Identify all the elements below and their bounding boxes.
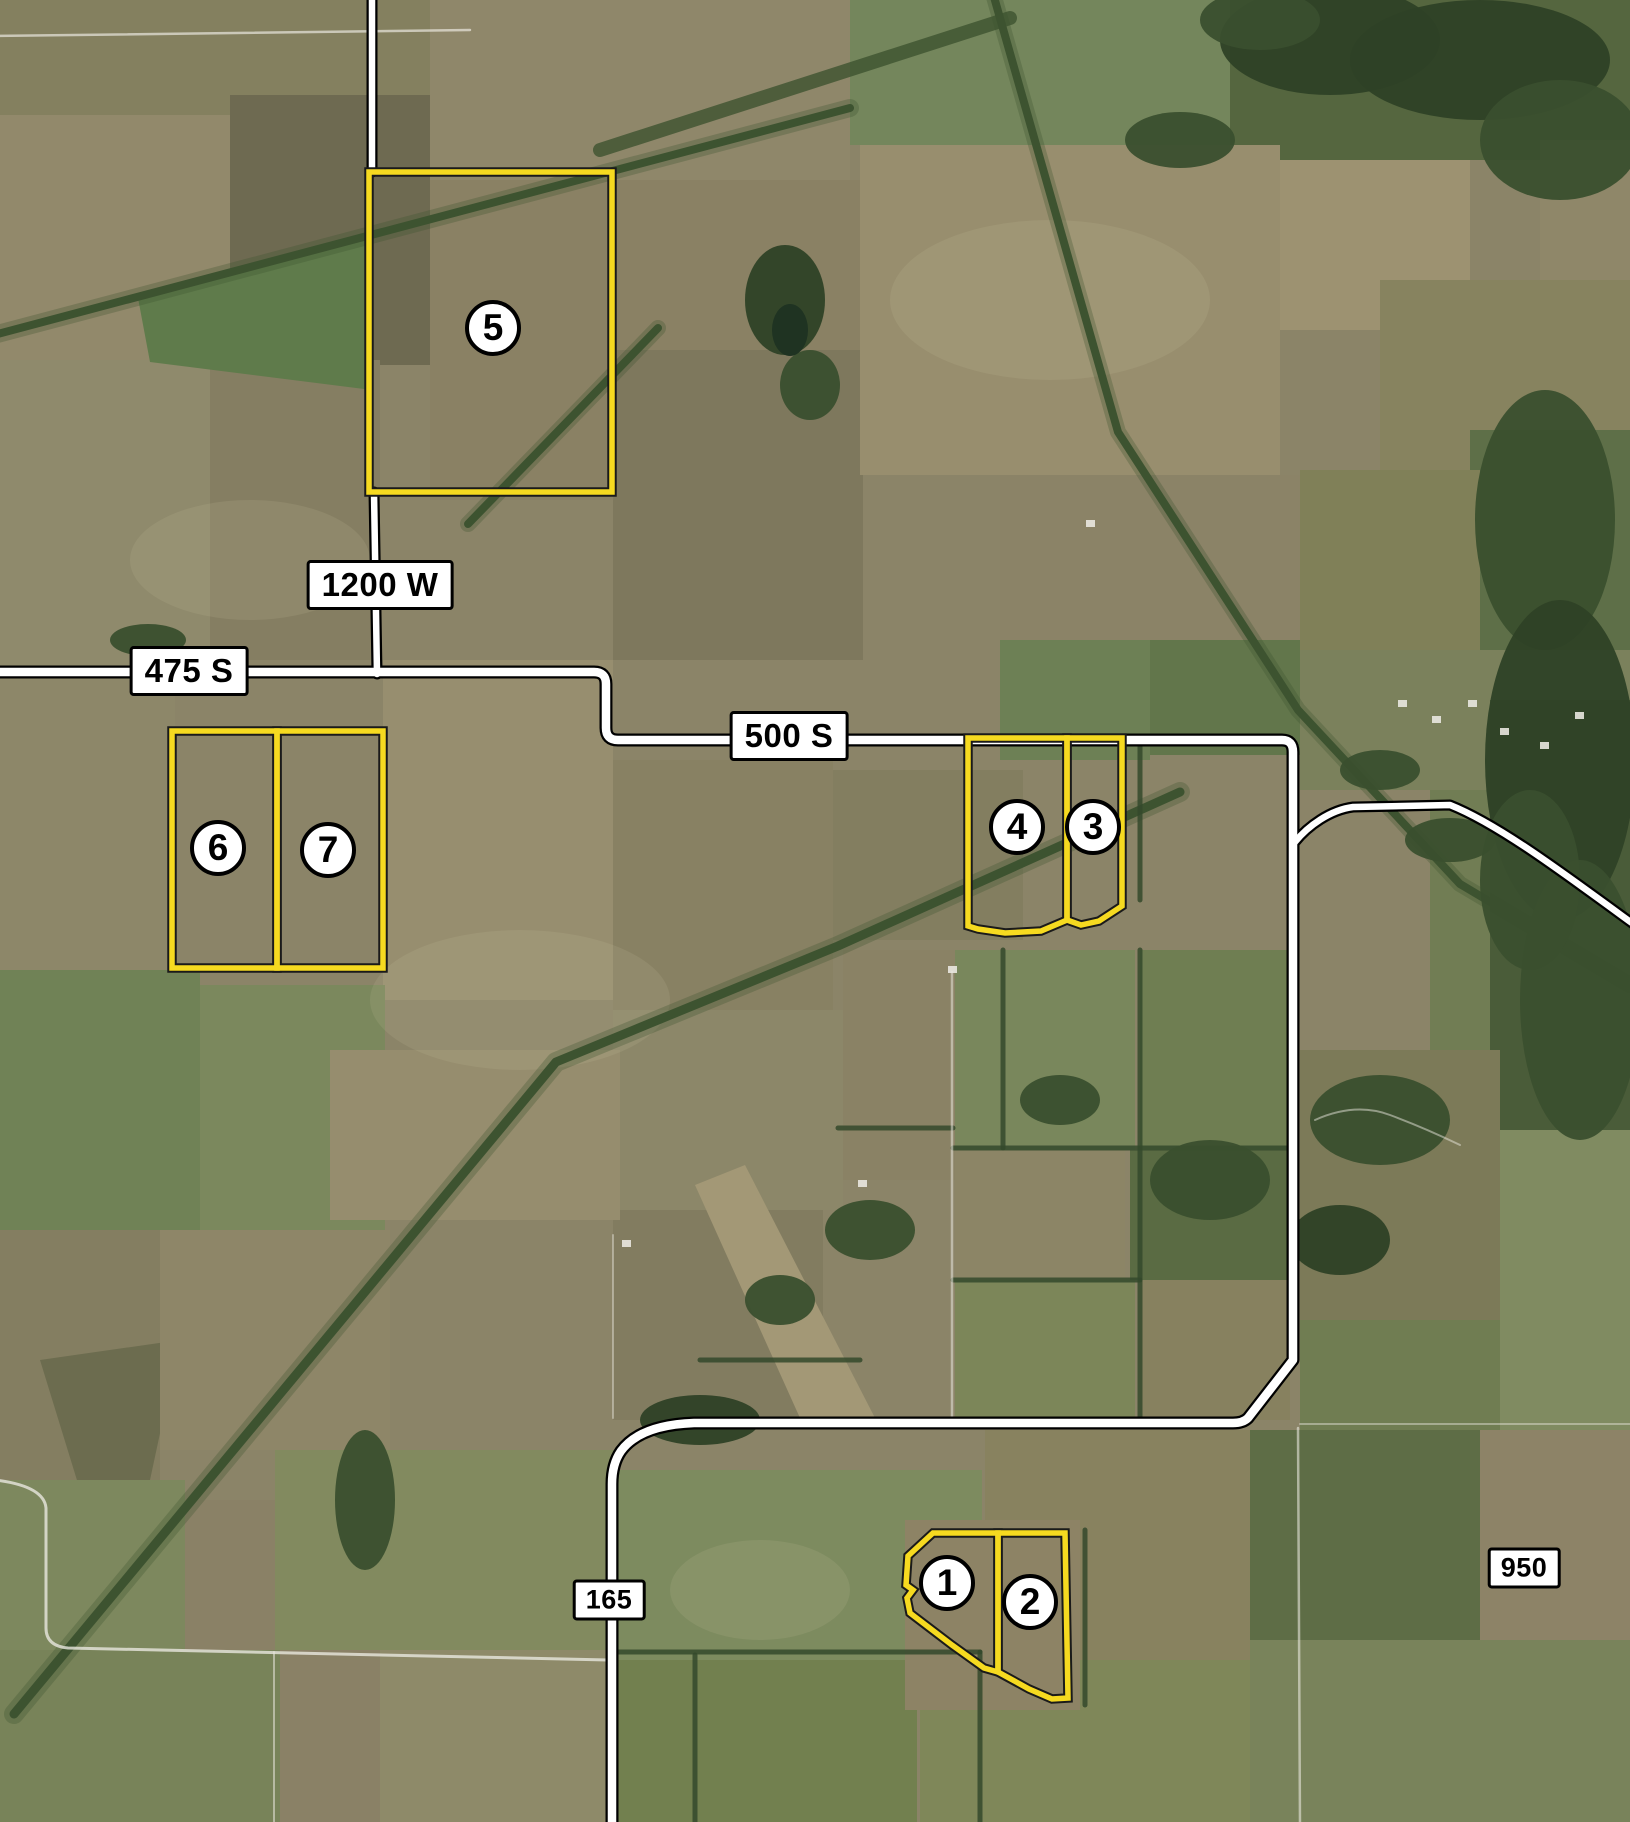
aerial-imagery <box>0 0 1630 1822</box>
road-label-950: 950 <box>1488 1547 1561 1588</box>
tract-marker-3: 3 <box>1065 799 1121 855</box>
tract-marker-2: 2 <box>1002 1574 1058 1630</box>
road-label-475s: 475 S <box>130 646 249 696</box>
tract-marker-4: 4 <box>989 799 1045 855</box>
satellite-parcel-map: 1200 W 475 S 500 S 165 950 1 2 3 4 5 6 7 <box>0 0 1630 1822</box>
tract-marker-7: 7 <box>300 822 356 878</box>
road-label-165: 165 <box>573 1579 646 1620</box>
road-label-500s: 500 S <box>730 711 849 761</box>
tract-marker-1: 1 <box>919 1555 975 1611</box>
tract-marker-6: 6 <box>190 820 246 876</box>
tract-marker-5: 5 <box>465 300 521 356</box>
road-label-1200w: 1200 W <box>307 560 454 610</box>
